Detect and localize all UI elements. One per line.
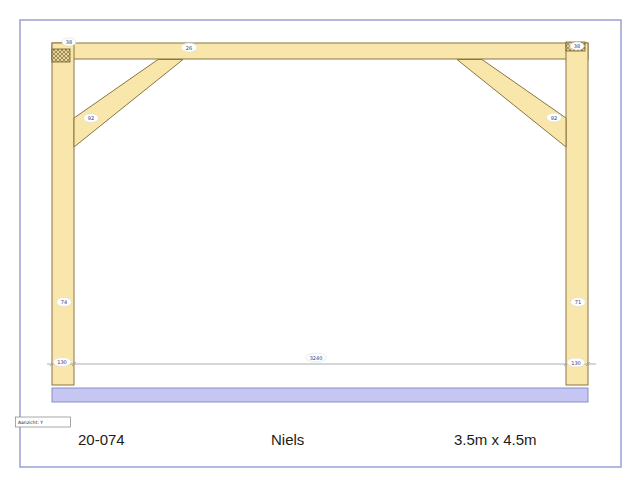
left-post	[52, 43, 74, 385]
dimension-span-text: 3240	[310, 355, 323, 361]
part-label-brace-left-text: 92	[88, 115, 94, 121]
post-end-grain-left	[52, 49, 70, 62]
part-label-post-right-text: 71	[575, 299, 581, 305]
dimension-span: 3240	[306, 353, 327, 362]
left-brace	[74, 60, 183, 148]
view-label-text: Aanzicht: Y	[18, 420, 43, 425]
part-label-brace-right-text: 92	[551, 115, 557, 121]
part-label-post-left-text: 74	[61, 299, 67, 305]
dimension-right-offset-text: 130	[571, 360, 581, 366]
part-label-post-right-top-text: 38	[574, 43, 580, 49]
part-label-post-right: 71	[571, 298, 586, 307]
view-label-box: Aanzicht: Y	[16, 417, 71, 427]
dimension-left-offset-text: 130	[57, 359, 67, 365]
timber-frame-drawing: 38 26 38 92 92 74 71 130	[0, 0, 640, 480]
part-label-beam-text: 26	[186, 45, 192, 51]
drawing-sheet: 38 26 38 92 92 74 71 130	[0, 0, 640, 480]
size-label: 3.5m x 4.5m	[454, 431, 537, 448]
part-label-post-right-top: 38	[570, 42, 584, 50]
part-label-beam: 26	[181, 43, 197, 52]
right-brace	[457, 60, 566, 148]
ground-sill	[52, 388, 588, 402]
dimension-right-offset: 130	[567, 358, 585, 367]
top-beam	[52, 43, 588, 59]
part-label-brace-left: 92	[84, 114, 99, 123]
project-number: 20-074	[78, 431, 125, 448]
part-label-brace-right: 92	[547, 113, 562, 122]
client-name: Niels	[271, 431, 304, 448]
dimension-left-offset: 130	[53, 358, 71, 367]
part-label-post-left-top-text: 38	[66, 39, 72, 45]
part-label-post-left-top: 38	[62, 38, 76, 46]
part-label-post-left: 74	[57, 298, 72, 307]
right-post	[566, 43, 588, 385]
